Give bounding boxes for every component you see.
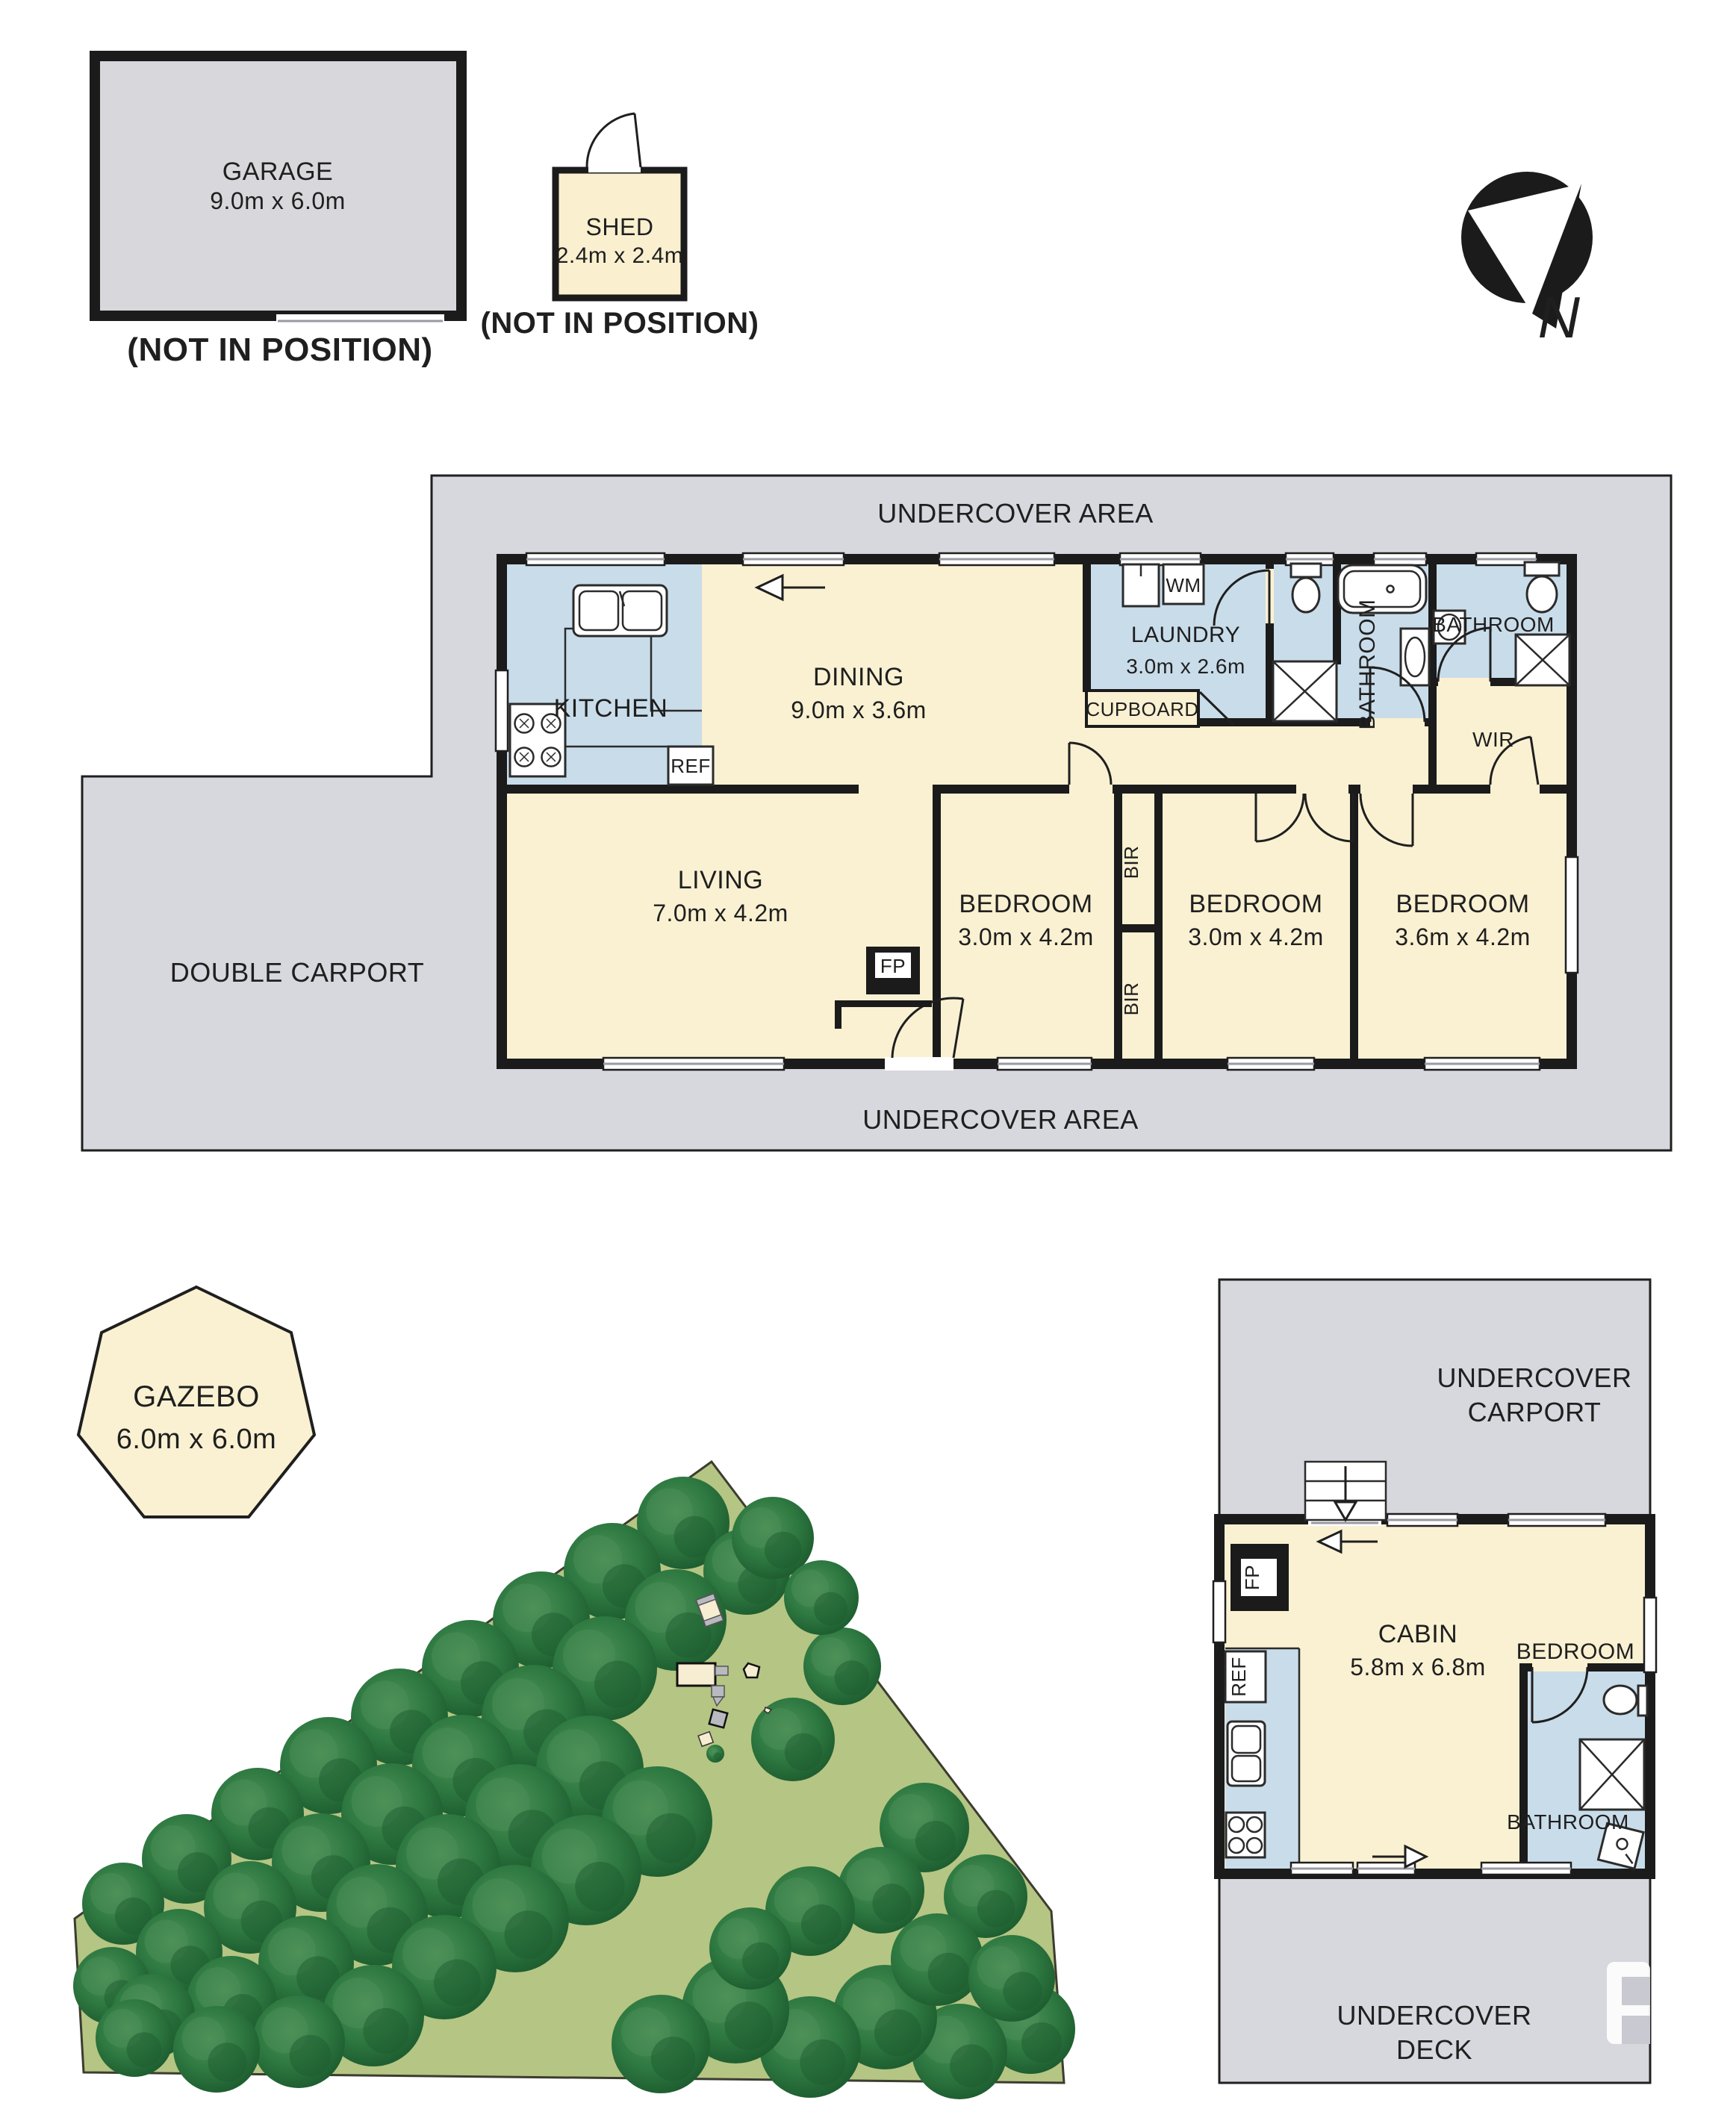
shed-label: SHED <box>586 214 654 240</box>
watermark-logo <box>1607 1962 1650 2044</box>
cabin-dims: 5.8m x 6.8m <box>1350 1654 1486 1680</box>
garden-structure-square <box>709 1710 727 1727</box>
wall-divider-a <box>502 785 859 794</box>
shed-door-arc <box>587 113 635 167</box>
cabin-carport-label-2: CARPORT <box>1468 1397 1602 1427</box>
laundry-label: LAUNDRY <box>1131 623 1240 647</box>
living-dims: 7.0m x 4.2m <box>653 900 788 926</box>
cabin-deck-label-1: UNDERCOVER <box>1337 2000 1531 2031</box>
bedroom3-label: BEDROOM <box>1396 890 1529 918</box>
undercover-top-label: UNDERCOVER AREA <box>877 498 1154 529</box>
garage-note: (NOT IN POSITION) <box>127 331 432 368</box>
tree-icon <box>742 1942 780 1980</box>
gazebo-dims: 6.0m x 6.0m <box>116 1424 277 1455</box>
tree-icon <box>290 2035 332 2077</box>
bedroom2-label: BEDROOM <box>1189 890 1322 918</box>
shed-note: (NOT IN POSITION) <box>481 307 759 340</box>
wall-divider-f <box>1540 785 1572 794</box>
bedroom1-dims: 3.0m x 4.2m <box>958 923 1094 950</box>
tree-icon <box>800 2040 845 2085</box>
orchard <box>73 1462 1075 2099</box>
double-carport-label: DOUBLE CARPORT <box>170 957 424 988</box>
tree-icon <box>594 1661 641 1708</box>
cabin-ref-label: REF <box>1228 1657 1250 1697</box>
tree-icon <box>872 1884 911 1922</box>
tree-icon <box>801 1904 841 1945</box>
cabin-fp-label: FP <box>1241 1565 1263 1590</box>
floorplan-canvas: GARAGE 9.0m x 6.0m (NOT IN POSITION) SHE… <box>0 0 1736 2103</box>
bedroom1-label: BEDROOM <box>959 890 1092 918</box>
tree-icon <box>208 2043 246 2081</box>
cabin-block: UNDERCOVER CARPORT UNDERCOVER DECK REF F… <box>1213 1280 1656 2083</box>
wall-bir-divider <box>1114 924 1163 932</box>
tree-icon <box>651 2037 695 2081</box>
ref-label: REF <box>671 755 711 777</box>
cabin-bathroom-label: BATHROOM <box>1507 1810 1629 1833</box>
tree-icon <box>1003 1972 1042 2010</box>
tree-icon <box>765 1532 802 1569</box>
garden-shed-structure <box>677 1663 715 1686</box>
fp-label: FP <box>880 955 906 977</box>
shed-door-leaf <box>635 113 641 167</box>
tree-icon <box>363 2008 408 2054</box>
tree-icon <box>874 2010 921 2057</box>
tree-icon <box>714 1752 722 1760</box>
tree-icon <box>1021 2022 1062 2063</box>
tree-icon <box>915 1821 956 1861</box>
wall-living-bed1 <box>933 785 941 1064</box>
tree-icon <box>127 2032 162 2067</box>
garage-outline <box>95 56 461 316</box>
tree-icon <box>785 1733 822 1771</box>
wall-dining-laundry <box>1083 559 1091 692</box>
wall-divider-e <box>1413 785 1490 794</box>
wm-label: WM <box>1166 574 1201 596</box>
bir1-label: BIR <box>1120 846 1142 879</box>
laundry-dims: 3.0m x 2.6m <box>1126 655 1245 678</box>
compass-n-label: N <box>1538 284 1581 350</box>
cabin-toilet-icon <box>1638 1686 1647 1716</box>
gazebo-label: GAZEBO <box>133 1380 260 1413</box>
tree-icon <box>814 1592 847 1626</box>
cabin-steps <box>1305 1462 1386 1520</box>
shed: SHED 2.4m x 2.4m (NOT IN POSITION) <box>481 113 759 340</box>
window-right <box>1566 857 1578 973</box>
shed-door-opening <box>588 161 641 172</box>
gazebo: GAZEBO 6.0m x 6.0m <box>78 1287 314 1517</box>
shed-dims: 2.4m x 2.4m <box>556 243 684 268</box>
main-floorplan: UNDERCOVER AREA UNDERCOVER AREA DOUBLE C… <box>82 476 1671 1150</box>
floorplan-page: GARAGE 9.0m x 6.0m (NOT IN POSITION) SHE… <box>0 0 1736 2103</box>
garden-structure-pentagon <box>744 1663 759 1677</box>
wall-divider-d <box>1348 785 1360 794</box>
tree-icon <box>950 2044 993 2087</box>
cabin-label: CABIN <box>1378 1620 1457 1648</box>
tree-icon <box>505 1910 553 1959</box>
cabin-deck-label-2: DECK <box>1396 2034 1472 2065</box>
cabin-bedroom-label: BEDROOM <box>1516 1639 1635 1664</box>
undercover-bottom-label: UNDERCOVER AREA <box>862 1104 1139 1135</box>
entry-door-opening <box>885 1057 953 1071</box>
tree-icon <box>646 1813 696 1863</box>
bathroom1-label: BATHROOM <box>1355 599 1380 729</box>
toilet-icon <box>1525 562 1559 576</box>
garage-dims: 9.0m x 6.0m <box>210 187 346 214</box>
garage: GARAGE 9.0m x 6.0m (NOT IN POSITION) <box>95 56 461 368</box>
tree-icon <box>575 1862 625 1912</box>
tree-icon <box>725 2001 774 2050</box>
bedroom2-dims: 3.0m x 4.2m <box>1188 923 1324 950</box>
tree-icon <box>977 1890 1015 1928</box>
wall-laundry-wc-top <box>1266 559 1274 569</box>
dining-label: DINING <box>813 663 904 691</box>
bir2-label: BIR <box>1120 982 1142 1016</box>
bathroom2-label: BATHROOM <box>1432 613 1555 636</box>
tree-icon <box>928 1953 970 1995</box>
cabin-carport-label-1: UNDERCOVER <box>1437 1362 1631 1393</box>
wall-divider-b <box>937 785 1069 794</box>
dining-dims: 9.0m x 3.6m <box>791 697 927 723</box>
kitchen-label: KITCHEN <box>554 694 668 723</box>
toilet-icon <box>1291 564 1321 577</box>
north-arrow: N <box>1461 172 1593 350</box>
cupboard-label: CUPBOARD <box>1086 698 1198 720</box>
living-label: LIVING <box>678 866 763 894</box>
wall-divider-c <box>1113 785 1296 794</box>
garage-label: GARAGE <box>223 158 333 186</box>
wall-hall-north-b <box>1425 718 1432 726</box>
tree-icon <box>434 1960 481 2007</box>
bedroom3-dims: 3.6m x 4.2m <box>1395 923 1531 950</box>
tree-icon <box>835 1660 870 1695</box>
window-left <box>496 670 508 751</box>
